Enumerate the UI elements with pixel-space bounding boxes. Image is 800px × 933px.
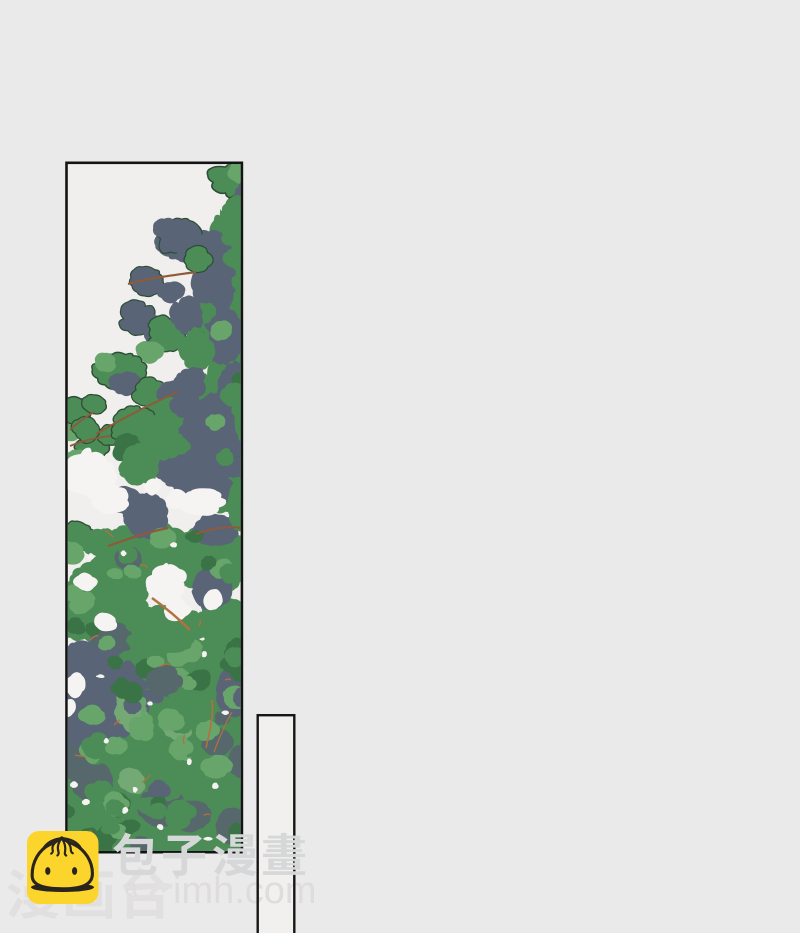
svg-text:a: a: [125, 875, 138, 900]
